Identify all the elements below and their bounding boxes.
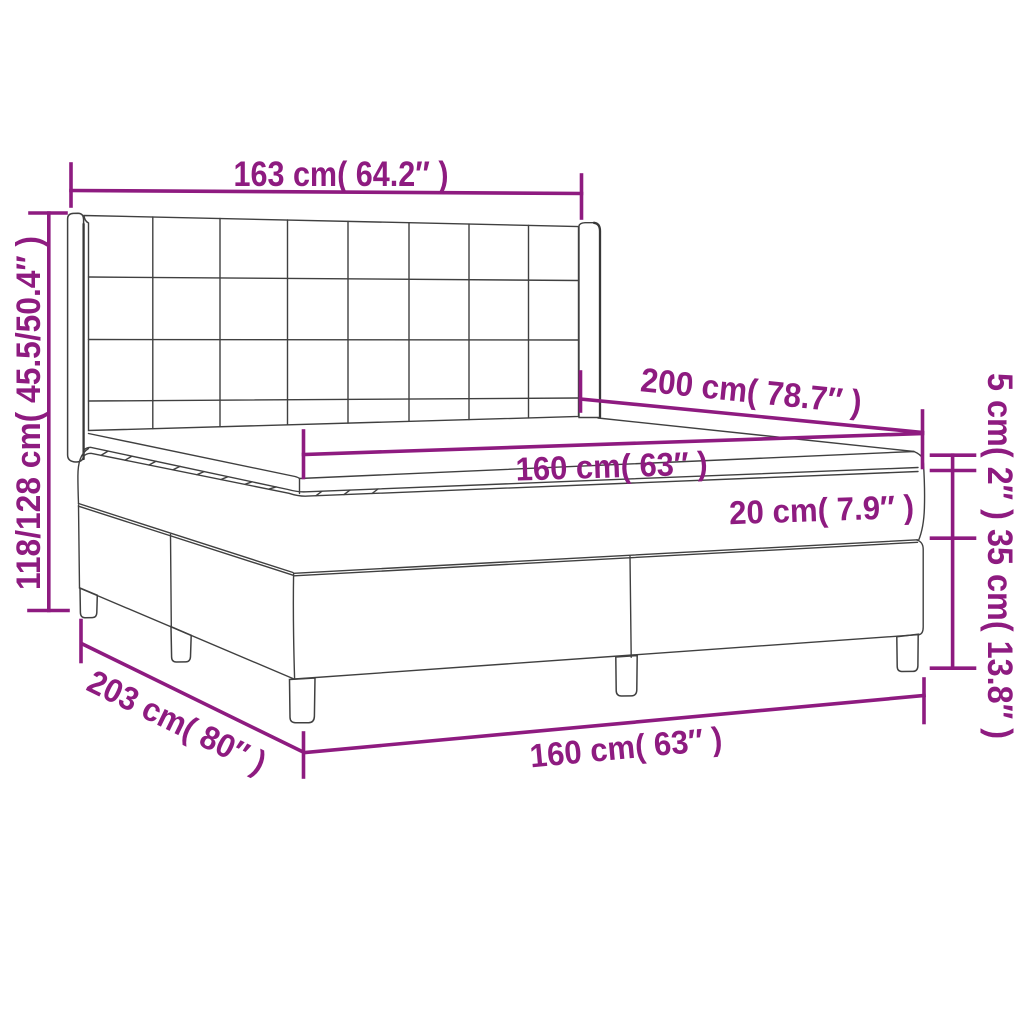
svg-text:5 cm( 2″ ) 35 cm( 13.8″ ): 5 cm( 2″ ) 35 cm( 13.8″ ) [980,373,1019,739]
svg-text:160 cm( 63″ ): 160 cm( 63″ ) [515,444,708,487]
svg-text:20 cm( 7.9″ ): 20 cm( 7.9″ ) [729,488,915,531]
svg-text:163 cm( 64.2″ ): 163 cm( 64.2″ ) [234,155,449,194]
svg-text:118/128 cm( 45.5/50.4″ ): 118/128 cm( 45.5/50.4″ ) [10,236,48,590]
